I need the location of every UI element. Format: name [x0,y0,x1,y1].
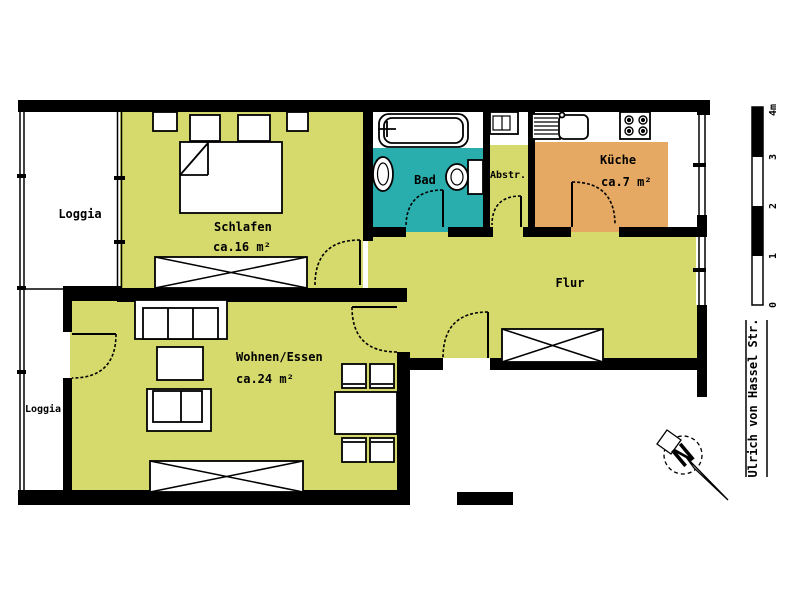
scale-label-4: 4m [768,104,779,116]
scale-label-3: 3 [768,154,779,160]
kitchen-floor-white [668,142,697,232]
tick [17,286,26,290]
scale-label-1: 1 [768,253,779,259]
bad-label: Bad [414,173,436,187]
wall-bad-abstell [483,112,490,233]
tick [114,176,125,180]
scale-bar: 4m 3 2 1 0 [752,104,779,308]
loggia-top-floor [25,112,117,288]
wall-service-a [363,227,406,237]
wohnen-area-label: ca.24 m² [236,372,294,386]
scale-seg-black-top [752,107,763,157]
scale-label-2: 2 [768,203,779,209]
pillow-right [238,115,270,141]
sofa-large [135,300,227,339]
kueche-label: Küche [600,153,636,167]
abstell-label: Abstr. [490,170,526,181]
tick [693,163,706,167]
street: Ulrich von Hassel Str. [746,319,767,478]
sink-faucet [560,113,565,118]
scale-seg-black-mid [752,206,763,256]
wall-bottom-stub [457,492,513,505]
wardrobe-wohnen [150,461,303,492]
wall-service-b [448,227,493,237]
sofa-small [147,389,211,431]
wall-loggia-upper [63,286,72,332]
loggia-railing-line [20,112,24,490]
bed-body [180,142,282,213]
tick [693,268,706,272]
wall-flur-bottom-left [407,358,443,370]
nightstand-left [153,112,177,131]
pillow-left [190,115,220,141]
schlafen-label: Schlafen [214,220,272,234]
wall-right-low [697,305,707,397]
wall-right-mid [697,215,707,235]
wardrobe-flur [502,329,603,362]
tick [17,174,26,178]
wall-service-c [523,227,571,237]
bathtub [378,114,468,147]
floorplan-page: Loggia Loggia Schlafen ca.16 m² Bad Abst… [0,0,800,600]
window-loggia-schlafen [118,112,122,288]
washing-machine [490,112,518,134]
flur-label: Flur [556,276,585,290]
coffee-table [157,347,203,380]
dining-table [335,392,397,434]
wall-top [18,100,710,112]
loggia-top-label: Loggia [58,207,101,221]
wall-loggia-lower [63,378,72,492]
kitchen-sink [532,113,588,140]
washbasin [373,157,393,191]
scale-label-0: 0 [768,302,779,308]
stove [620,112,650,139]
schlafen-area-label: ca.16 m² [213,240,271,254]
nightstand-right [287,112,308,131]
street-name-label: Ulrich von Hassel Str. [746,319,760,478]
floor-plan: Loggia Loggia Schlafen ca.16 m² Bad Abst… [0,0,800,600]
wall-schlafen-bad [363,112,373,241]
loggia-bottom-floor [25,290,63,490]
loggia-bottom-label: Loggia [25,403,61,415]
wall-service-d [619,227,707,237]
wohnen-label: Wohnen/Essen [236,350,323,364]
tick [17,370,26,374]
wall-right-top [697,100,710,115]
wall-wohnen-right [397,352,410,492]
north-arrow: N [657,430,728,500]
tick [114,240,125,244]
dining-set [335,364,397,462]
kueche-area-label: ca.7 m² [601,175,652,189]
wardrobe-schlafen [155,257,307,288]
